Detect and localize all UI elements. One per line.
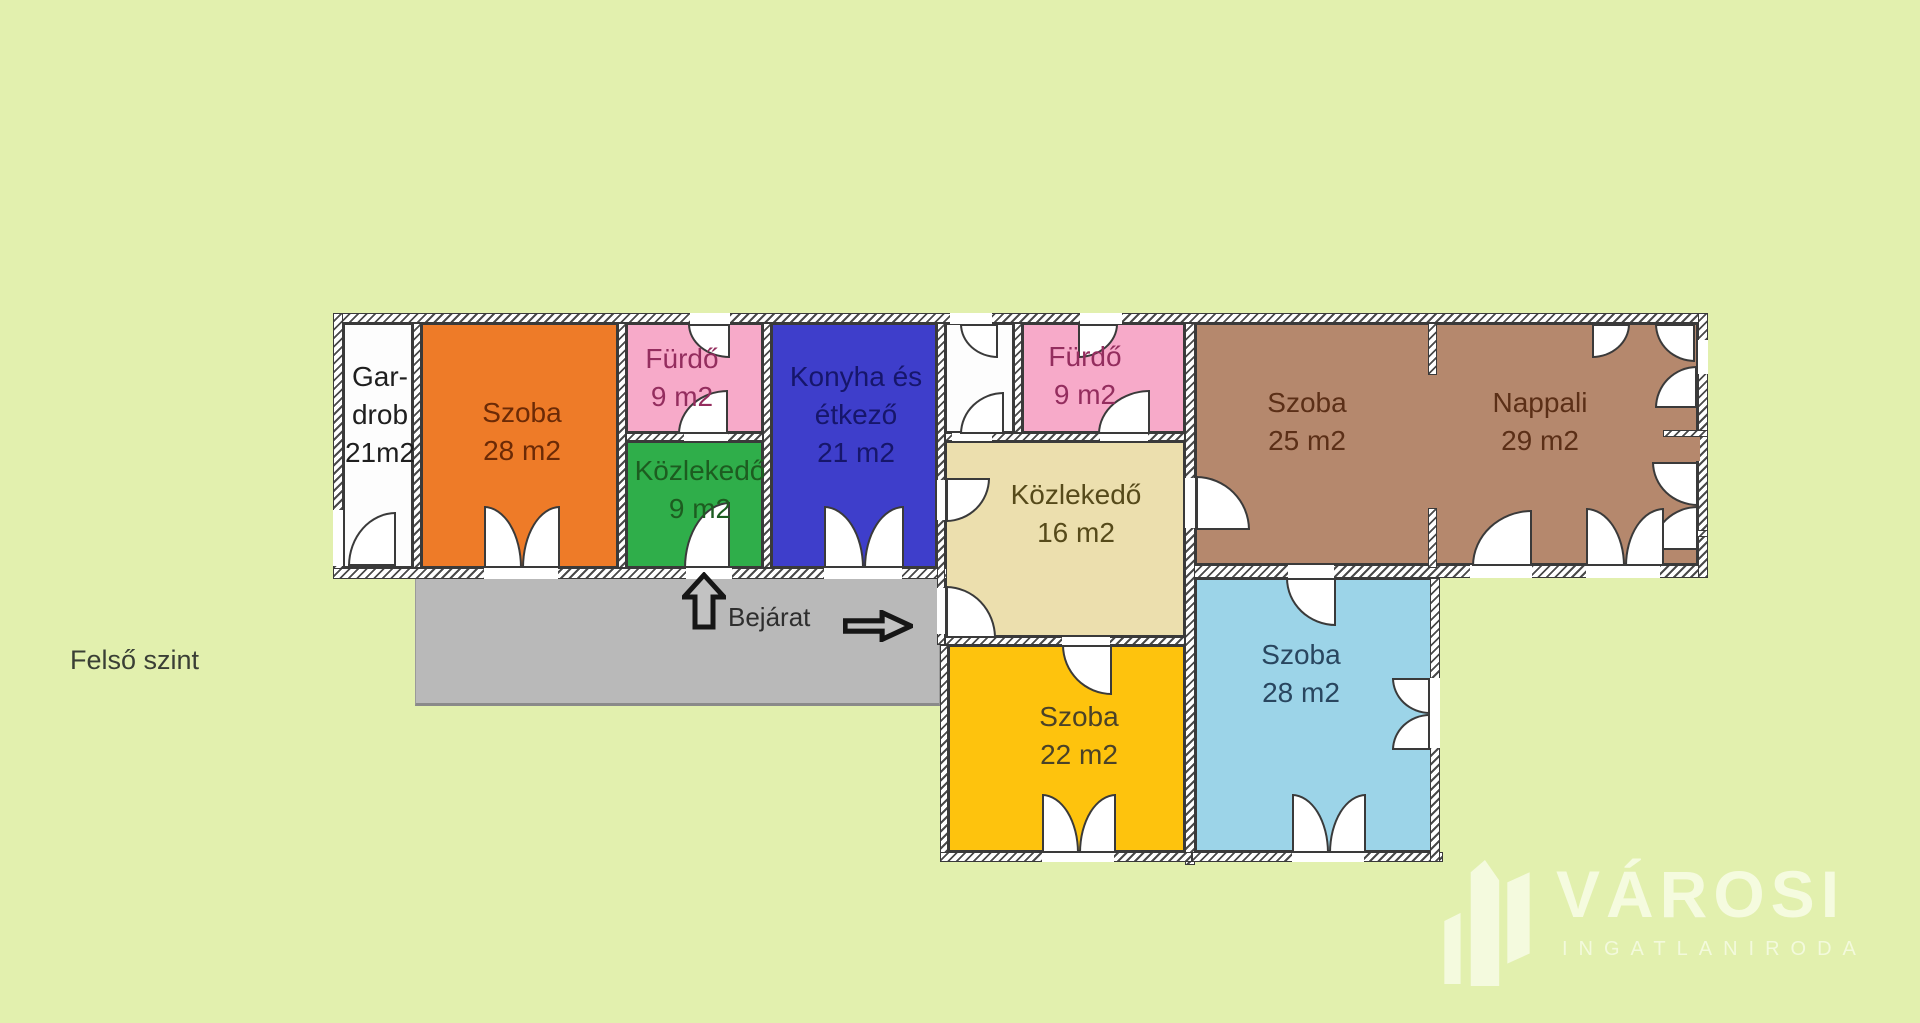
- arrow-right-icon: [843, 610, 913, 647]
- room-label-line: 22 m2: [939, 736, 1219, 774]
- floor-plan-canvas: Felső szint Gar-drob21m2Szoba28 m2Fürdő9…: [0, 0, 1920, 1023]
- logo-subtitle-text: INGATLANIRODA: [1562, 938, 1867, 961]
- door-opening: [950, 313, 992, 324]
- room-label-line: 21 m2: [716, 434, 996, 472]
- room-label-nappali: Nappali29 m2: [1400, 384, 1680, 460]
- room-label-szoba-28-b: Szoba28 m2: [1161, 636, 1441, 712]
- room-label-line: 9 m2: [560, 490, 840, 528]
- entrance-label: Bejárat: [728, 602, 810, 633]
- door-opening: [1586, 565, 1660, 578]
- door-opening: [1080, 313, 1122, 324]
- door-opening: [333, 510, 343, 566]
- room-label-line: Nappali: [1400, 384, 1680, 422]
- room-label-kozlekedo-16: Közlekedő16 m2: [936, 476, 1216, 552]
- room-label-line: 28 m2: [1161, 674, 1441, 712]
- door-opening: [1288, 565, 1334, 578]
- door-opening: [484, 568, 558, 579]
- door-opening: [937, 588, 945, 634]
- door-opening: [1062, 637, 1110, 645]
- door-opening: [1470, 565, 1532, 578]
- floor-level-label: Felső szint: [70, 645, 199, 676]
- door-opening: [690, 313, 730, 324]
- room-label-line: Közlekedő: [936, 476, 1216, 514]
- wall-partition-stub-bottom: [1428, 508, 1437, 568]
- room-label-line: 29 m2: [1400, 422, 1680, 460]
- door-opening: [824, 568, 902, 579]
- door-opening: [1100, 433, 1148, 441]
- door-opening: [1292, 852, 1364, 862]
- logo-brand-text: VÁROSI: [1556, 856, 1845, 932]
- room-label-line: Fürdő: [945, 338, 1225, 376]
- room-label-line: Gar-: [240, 358, 520, 396]
- door-opening: [1042, 852, 1114, 862]
- wall-partition-stub-top: [1428, 323, 1437, 375]
- buildings-icon: [1444, 858, 1532, 991]
- room-label-line: Szoba: [1161, 636, 1441, 674]
- door-opening: [1698, 340, 1708, 374]
- agency-watermark: VÁROSI INGATLANIRODA: [1444, 854, 1884, 994]
- arrow-up-icon: [682, 572, 726, 635]
- wall-outer-top: [333, 313, 1708, 323]
- room-label-line: 16 m2: [936, 514, 1216, 552]
